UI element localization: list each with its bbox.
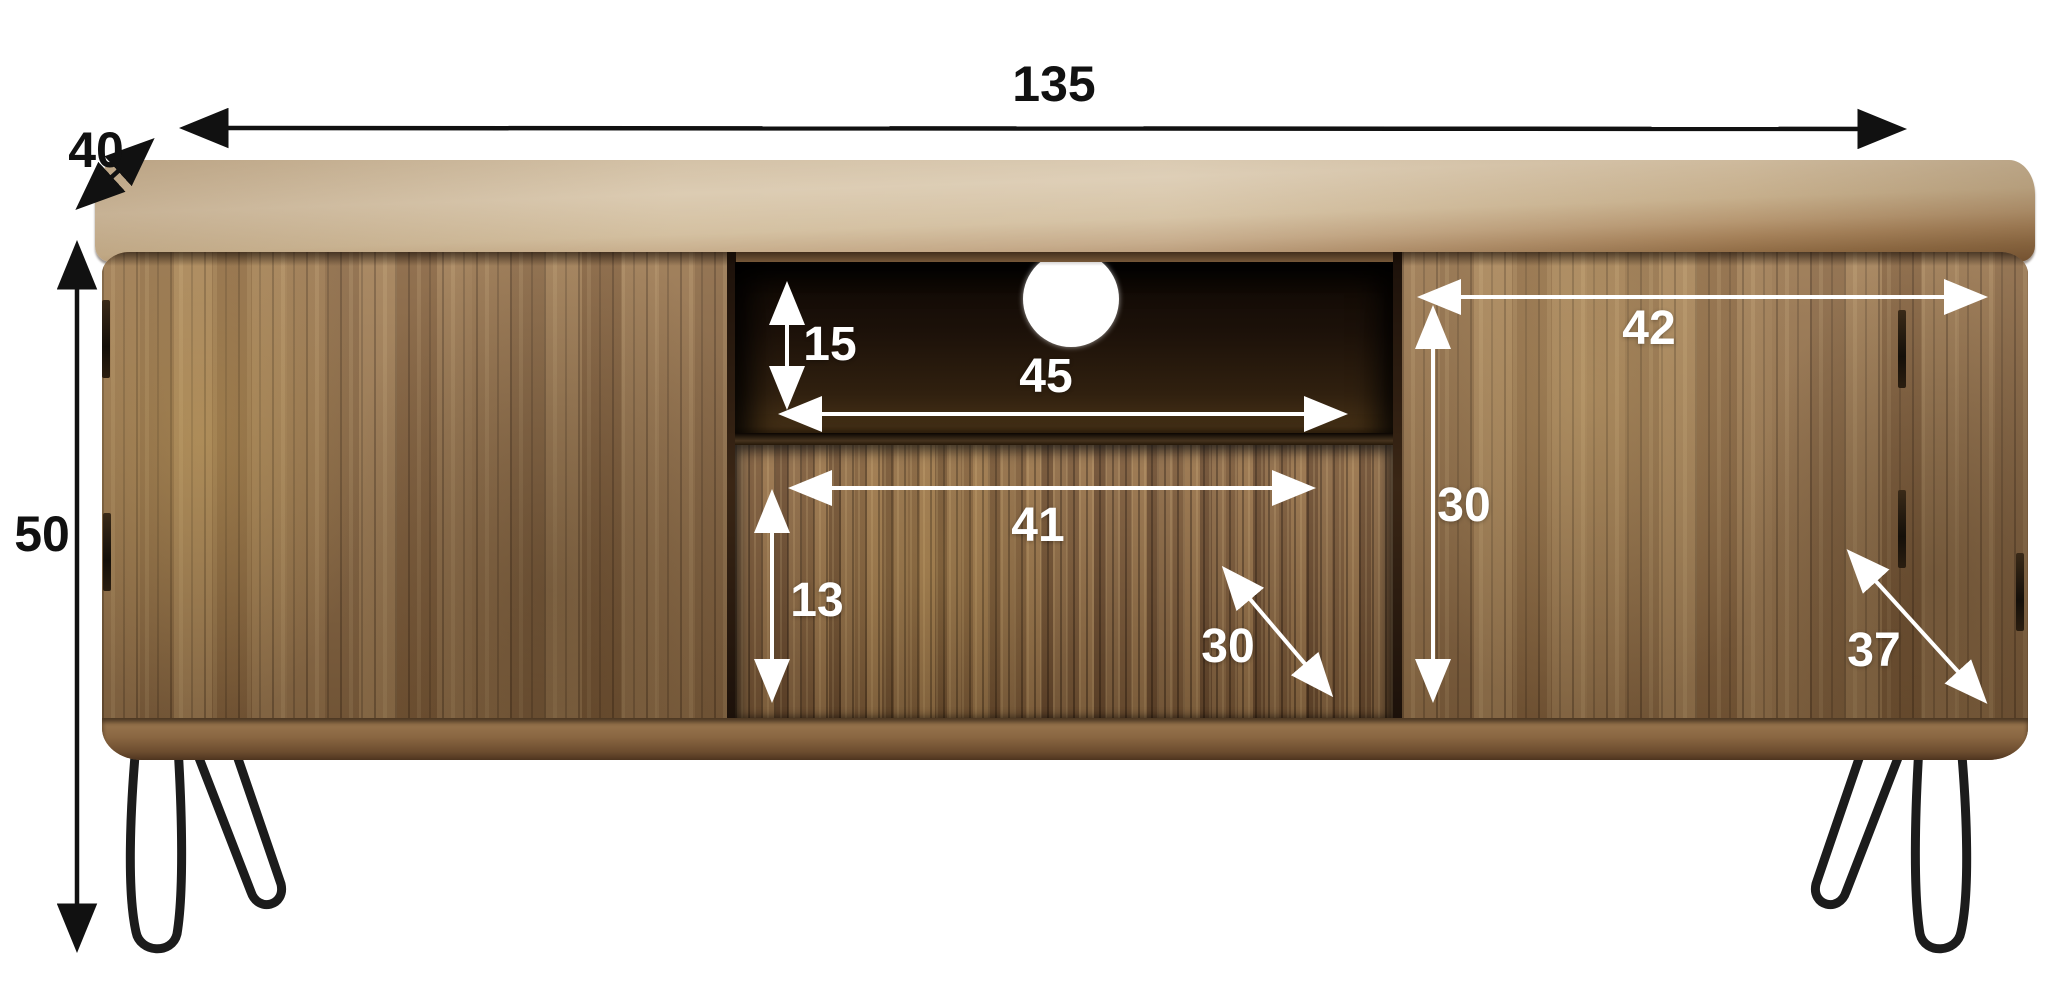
right-side-hinge bbox=[2016, 553, 2024, 631]
dim-label-niche-height: 15 bbox=[803, 321, 856, 369]
dim-label-door-diagonal: 37 bbox=[1847, 627, 1900, 675]
dim-label-drawer-height: 13 bbox=[790, 577, 843, 625]
left-hinge-bottom bbox=[103, 513, 111, 591]
left-hinge-top bbox=[102, 300, 110, 378]
dim-label-door-width: 42 bbox=[1622, 305, 1675, 353]
dim-label-drawer-depth: 30 bbox=[1201, 623, 1254, 671]
dim-label-total-height: 50 bbox=[14, 509, 70, 559]
cable-hole bbox=[1023, 262, 1119, 347]
tabletop bbox=[95, 160, 2035, 262]
right-door-seam bbox=[1393, 252, 1402, 718]
left-door bbox=[102, 252, 727, 718]
hairpin-leg-left bbox=[105, 742, 305, 967]
product-dimension-diagram: 135 40 50 15 45 41 13 30 42 30 37 bbox=[0, 0, 2048, 1004]
cabinet-body bbox=[102, 252, 2028, 760]
base-rail bbox=[102, 718, 2028, 760]
dim-label-niche-width: 45 bbox=[1019, 353, 1072, 401]
right-door bbox=[1402, 252, 2028, 718]
dim-label-door-height: 30 bbox=[1437, 482, 1490, 530]
right-hinge-top bbox=[1898, 310, 1906, 388]
right-hinge-bottom bbox=[1898, 490, 1906, 568]
hairpin-leg-right bbox=[1792, 742, 1992, 967]
dim-label-total-width: 135 bbox=[1012, 59, 1095, 109]
dim-label-total-depth: 40 bbox=[68, 125, 124, 175]
arrow-total-width bbox=[188, 128, 1898, 129]
dim-label-drawer-width: 41 bbox=[1011, 502, 1064, 550]
